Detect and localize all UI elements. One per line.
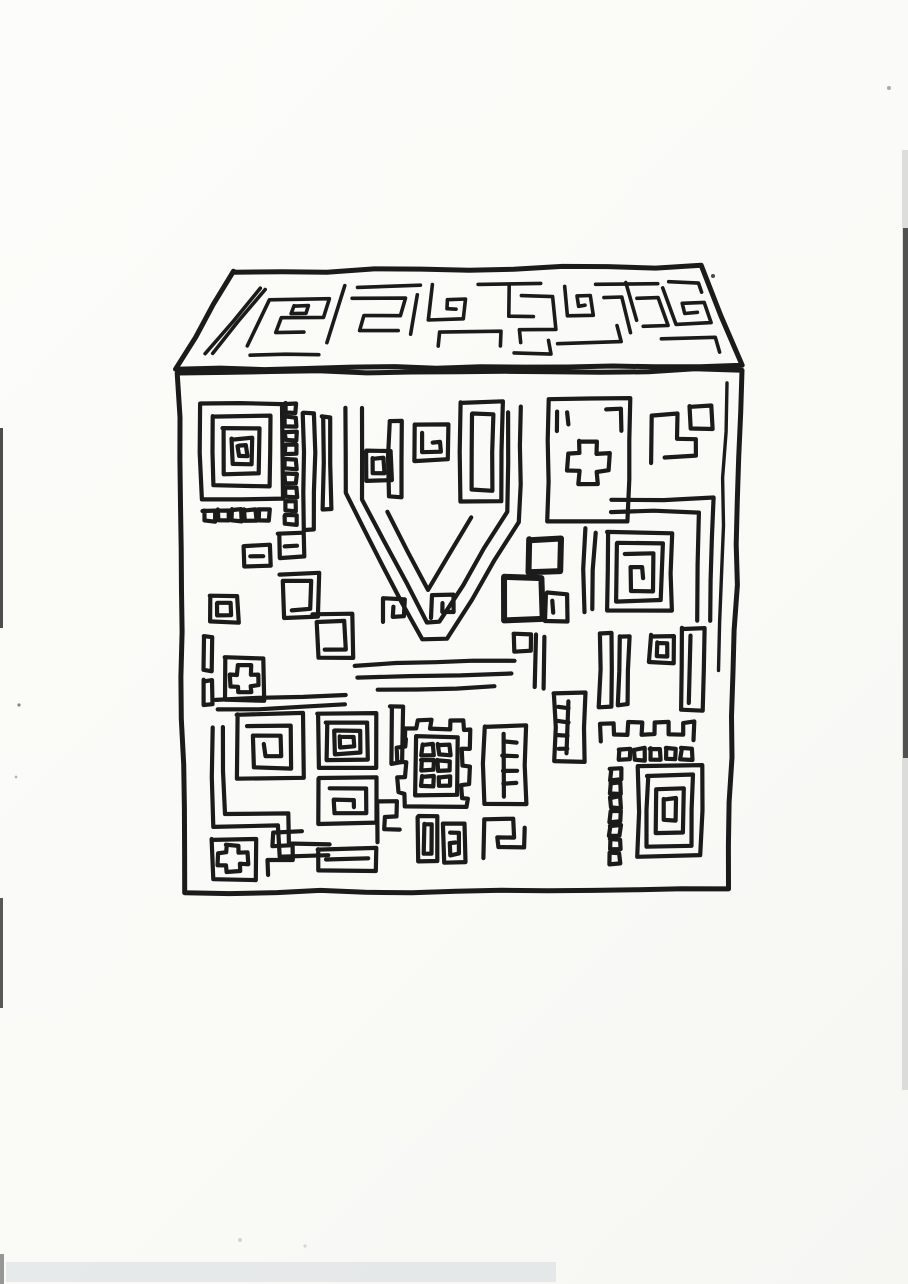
ink-stroke [610,768,622,780]
ink-stroke [719,383,728,671]
ink-stroke [216,695,346,700]
ink-stroke [609,853,620,865]
ink-stroke [567,412,568,424]
ink-stroke [422,433,441,452]
ink-stroke [352,298,405,331]
ink-stroke [669,282,702,293]
ink-stroke [483,819,524,858]
ink-stroke [558,721,569,723]
ink-stroke [650,748,661,760]
ink-stroke [378,686,495,690]
ink-stroke [689,636,691,703]
ink-stroke [285,432,297,441]
ink-stroke [558,735,568,736]
ink-stroke [421,760,434,771]
ink-stroke [552,601,553,613]
ink-stroke [203,511,216,522]
scan-edge-band [0,1254,4,1284]
ink-stroke [326,858,368,859]
scan-edge-band [0,898,3,1008]
ink-stroke [592,533,595,609]
ink-stroke [606,409,621,431]
ink-stroke [212,728,328,857]
scan-artifacts [0,86,908,1284]
scan-edge-band [6,1262,556,1282]
ink-stroke [666,748,676,759]
ink-stroke [610,839,621,849]
ink-stroke [514,634,531,652]
ink-stroke [373,458,385,474]
ink-stroke [322,416,332,509]
ink-stroke [421,744,434,756]
ink-stroke [502,756,517,757]
ink-stroke [625,553,654,591]
ink-stroke [439,776,451,786]
ink-stroke [377,801,400,842]
ink-stroke [504,577,543,621]
ink-stroke [204,636,213,671]
scan-edge-band [0,428,3,628]
ink-stroke [217,603,231,616]
ink-stroke [558,707,568,708]
ink-stroke [250,354,319,355]
ink-stroke [664,798,676,821]
ink-stroke [663,288,711,325]
ink-stroke [583,528,585,612]
ink-stroke [438,331,501,346]
ink-stroke [535,635,536,688]
ink-stroke [285,501,295,511]
ink-stroke [599,633,612,707]
ink-stroke [567,441,610,484]
ink-stroke [529,539,562,573]
cube-front-face [177,369,742,894]
ink-stroke [340,736,355,747]
ink-stroke [647,775,694,847]
ink-stroke [681,628,705,711]
ink-stroke [362,408,508,623]
scan-speck [238,1238,242,1242]
ink-stroke [247,726,291,769]
scan-speck [303,1244,306,1247]
ink-stroke [609,811,620,822]
scan-speck [17,703,20,706]
scan-speck [711,274,715,278]
ink-stroke [544,637,545,689]
scanned-paper-page [0,0,908,1284]
ink-stroke [230,665,259,692]
ink-stroke [285,546,297,547]
ink-stroke [204,680,213,705]
ink-stroke [680,748,692,760]
ink-stroke [355,661,515,666]
ink-stroke [218,704,345,709]
ink-stroke [291,306,308,314]
ink-stroke [460,401,503,501]
ink-stroke [610,796,621,808]
ink-stroke [268,831,302,875]
ink-stroke [450,833,459,856]
ink-stroke [637,298,668,327]
ink-stroke [619,749,631,760]
ink-stroke [547,398,630,521]
ink-stroke [258,509,270,520]
ink-stroke [247,299,329,346]
ink-stroke [421,776,434,787]
scan-edge-band [903,228,908,758]
ink-stroke [545,593,568,622]
ink-stroke [656,788,684,833]
scan-speck [887,86,891,90]
ink-stroke [285,445,297,455]
ink-stroke [387,512,471,590]
ink-stroke [437,760,449,771]
ink-stroke [217,510,229,521]
ink-stroke [284,416,296,426]
ink-stroke [411,295,418,334]
ink-stroke [618,636,630,705]
ink-stroke [503,783,516,784]
ink-stroke [509,285,534,317]
ink-stroke [284,403,296,413]
ink-stroke [428,285,465,320]
maze-cube-drawing [0,0,908,1284]
ink-stroke [285,488,297,498]
ink-stroke [205,288,260,354]
ink-stroke [285,515,297,525]
ink-stroke [358,285,421,287]
ink-stroke [330,788,367,813]
ink-stroke [232,438,253,465]
ink-stroke [210,596,239,623]
ink-stroke [424,824,432,854]
ink-stroke [231,509,242,521]
ink-stroke [649,635,674,663]
ink-stroke [313,614,354,658]
ink-stroke [609,825,621,836]
ink-stroke [244,509,257,521]
ink-stroke [610,782,621,794]
ink-stroke [690,406,713,430]
cube-top-face [176,265,743,369]
ink-stroke [504,741,517,742]
ink-stroke [357,674,511,678]
scan-speck [15,776,18,779]
ink-stroke [284,474,297,484]
ink-stroke [327,286,345,343]
ink-stroke [472,414,494,491]
ink-stroke [519,296,556,343]
ink-stroke [438,744,451,755]
ink-stroke [565,286,594,315]
ink-stroke [280,573,320,618]
ink-stroke [634,748,645,761]
ink-stroke [285,459,297,469]
ink-stroke [600,721,694,741]
ink-stroke [657,642,668,656]
ink-stroke [238,445,248,456]
ink-stroke [661,337,719,352]
ink-stroke [558,326,622,344]
ink-stroke [303,413,316,530]
ink-stroke [218,845,249,872]
